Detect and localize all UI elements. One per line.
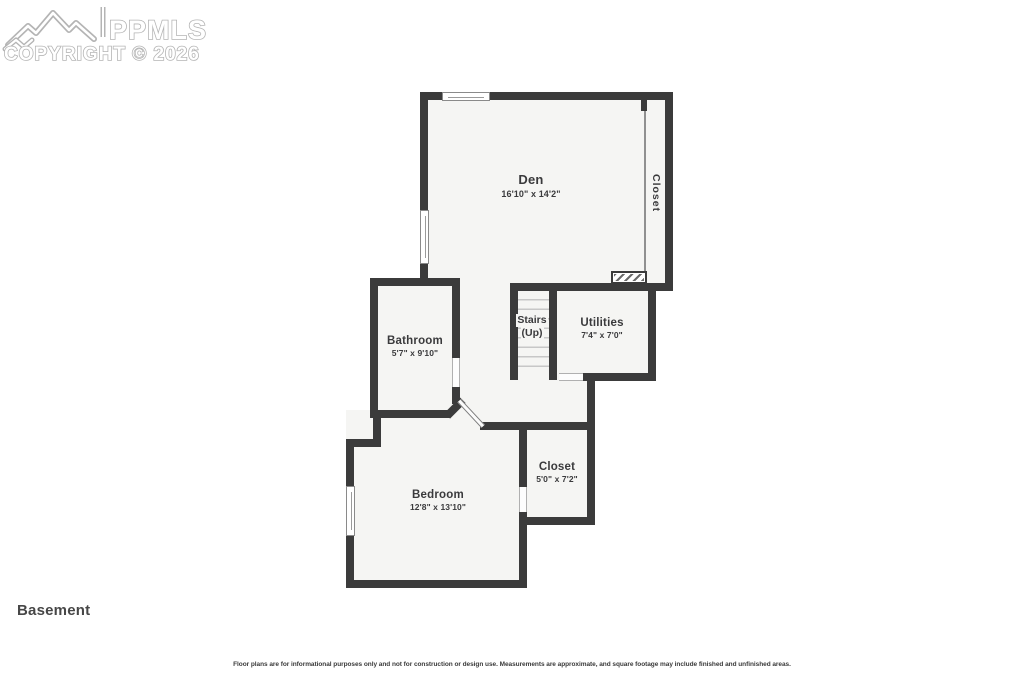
room-dimensions: 5'0" x 7'2" [497,475,617,485]
floor-level-title: Basement [17,602,90,619]
disclaimer-text: Floor plans are for informational purpos… [0,661,1024,668]
utilities-label: Utilities 7'4" x 7'0" [542,317,662,341]
utilities-door-opening [559,373,583,381]
watermark-copyright: COPYRIGHT © 2026 [4,44,200,65]
wall-bedroom-top [480,422,595,430]
room-name: Utilities [542,317,662,330]
bathroom-door-opening [452,358,460,387]
stairs-name: Stairs [516,314,547,327]
hatch-stripes [614,274,644,281]
wall-bedroom-bottom [346,580,527,588]
bedroom-left-window [346,486,355,536]
room-name: Bedroom [358,489,518,502]
upper-closet-label: Closet [648,158,664,228]
room-name: Bathroom [355,335,475,348]
room-dimensions: 12'8" x 13'10" [358,503,518,513]
watermark: PPMLS COPYRIGHT © 2026 [2,3,212,65]
stairs-direction: (Up) [521,327,544,340]
room-dimensions: 7'4" x 7'0" [542,331,662,341]
den-left-window [420,210,429,264]
wall-bathroom-bottom [370,410,450,418]
wall-lower-closet-right [587,373,595,525]
window-mullion [351,492,352,530]
watermark-brand: PPMLS [109,15,207,45]
window-mullion [448,97,484,98]
wall-den-right [665,92,673,291]
floor-plan-page: PPMLS COPYRIGHT © 2026 [0,0,1024,682]
wall-den-bottom [510,283,673,291]
bathroom-label: Bathroom 5'7" x 9'10" [355,335,475,359]
wall-lower-closet-bottom [519,517,595,525]
den-label: Den 16'10" x 14'2" [446,173,616,199]
room-dimensions: 5'7" x 9'10" [355,349,475,359]
bedroom-label: Bedroom 12'8" x 13'10" [358,489,518,513]
lower-closet-label: Closet 5'0" x 7'2" [497,461,617,485]
den-top-window [442,92,490,101]
stairs-label: Stairs (Up) [504,314,560,339]
hatched-access-panel [611,271,647,284]
lower-closet-door-opening [519,487,527,512]
room-name: Den [446,173,616,188]
room-name: Closet [497,461,617,474]
wall-upper-closet-stub [641,100,647,111]
wall-bathroom-top [370,278,460,286]
window-mullion [425,216,426,258]
upper-closet-divider-wall [644,110,646,272]
room-dimensions: 16'10" x 14'2" [446,189,616,199]
